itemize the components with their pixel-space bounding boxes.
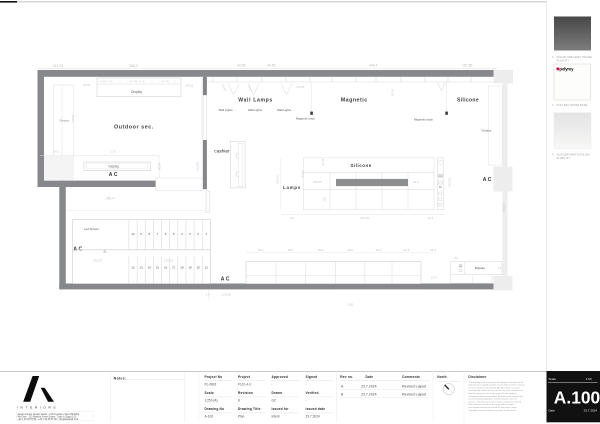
svg-text:This drawing is the property o: This drawing is the property of the desi… (468, 381, 524, 384)
svg-text:Approved: Approved (272, 375, 288, 379)
svg-text:Project: Project (238, 375, 251, 379)
svg-text:Magnetic track: Magnetic track (296, 117, 315, 121)
svg-text:17: 17 (172, 265, 176, 269)
svg-text:60: 60 (455, 256, 459, 260)
svg-text:F10 L4-3: F10 L4-3 (238, 382, 251, 386)
svg-text:84.7: 84.7 (54, 150, 60, 154)
svg-text:Wall Lights: Wall Lights (219, 108, 234, 112)
svg-text:other relevant consultant draw: other relevant consultant drawings and t… (468, 403, 514, 406)
svg-text:266.2: 266.2 (129, 64, 138, 68)
svg-text:300.55: 300.55 (502, 203, 506, 212)
svg-text:AC: AC (483, 177, 493, 183)
svg-text:checked and verified on site p: checked and verified on site prior to an… (468, 389, 523, 392)
svg-text:Display: Display (475, 266, 486, 270)
svg-text:Disclaimer: Disclaimer (468, 375, 487, 379)
svg-text:99.6: 99.6 (288, 248, 294, 252)
svg-text:Date: Date (549, 409, 556, 413)
svg-text:Plan: Plan (238, 414, 245, 418)
svg-text:18: 18 (180, 265, 184, 269)
svg-text:+49.55: +49.55 (296, 85, 305, 89)
svg-text:Notes:: Notes: (114, 376, 127, 380)
svg-text:99.6: 99.6 (347, 248, 353, 252)
svg-text:Wall Lights: Wall Lights (277, 108, 292, 112)
svg-text:14: 14 (148, 265, 152, 269)
svg-text:-: - (272, 382, 273, 386)
svg-text:practice. This drawing is to b: practice. This drawing is to be read in … (468, 400, 521, 403)
svg-text:Verified: Verified (306, 391, 319, 395)
svg-text:90: 90 (291, 216, 295, 220)
svg-text:21: 21 (205, 265, 209, 269)
svg-text:specification documents issued: specification documents issued for this … (468, 406, 517, 409)
svg-text:PL-0801: PL-0801 (205, 382, 217, 386)
svg-text:292: 292 (348, 303, 354, 307)
svg-text:GC: GC (272, 399, 277, 403)
svg-text:reproduced or copied in whole: reproduced or copied in whole or part wi… (468, 384, 525, 387)
svg-text:81: 81 (104, 250, 108, 254)
svg-text:4th Floor - 123 Mosseri Street: 4th Floor - 123 Mosseri Street Suites - … (18, 415, 77, 418)
svg-text:current building regulations a: current building regulations and all rel… (468, 398, 516, 401)
svg-text:99.9: 99.9 (258, 248, 264, 252)
svg-text:2.70: 2.70 (110, 150, 116, 154)
svg-text:Signed: Signed (306, 375, 318, 379)
svg-text:Wall Lights: Wall Lights (248, 108, 263, 112)
svg-text:39.4: 39.4 (413, 180, 419, 184)
svg-text:99.6: 99.6 (318, 248, 324, 252)
svg-text:1.6: 1.6 (206, 293, 210, 297)
svg-text:polyrey: polyrey (559, 67, 574, 72)
svg-text:Magnetic track: Magnetic track (414, 117, 433, 121)
svg-text:Silicone: Silicone (351, 163, 372, 168)
svg-text:Intent: Intent (272, 414, 280, 418)
svg-text:Display: Display (131, 90, 142, 94)
svg-text:Aswan Interior Design Studio -: Aswan Interior Design Studio - 123 Anywh… (18, 413, 81, 416)
svg-text:39.4: 39.4 (428, 216, 434, 220)
svg-text:Revision: Revision (238, 391, 253, 395)
svg-text:Silicone: Silicone (457, 97, 479, 103)
svg-text:A-100: A-100 (205, 414, 214, 418)
svg-text:66.01: 66.01 (186, 84, 194, 88)
svg-text:W (80) KIT: W (80) KIT (557, 156, 571, 160)
svg-text:Comments: Comments (402, 375, 420, 379)
svg-text:8: 8 (238, 399, 240, 403)
svg-text:-: - (306, 382, 307, 386)
svg-text:443.4: 443.4 (369, 63, 378, 67)
svg-text:99.6: 99.6 (404, 248, 410, 252)
svg-text:Magnetic: Magnetic (341, 97, 368, 103)
svg-text:COL#2: COL#2 (222, 293, 232, 297)
svg-text:23.7.2024: 23.7.2024 (361, 393, 377, 397)
svg-text:Scale: Scale (549, 377, 557, 381)
svg-text:16: 16 (164, 265, 168, 269)
svg-text:167.55: 167.55 (462, 63, 472, 67)
svg-text:433.00: 433.00 (313, 180, 322, 184)
svg-text:Issued date: Issued date (306, 407, 326, 411)
svg-text:-: - (306, 399, 307, 403)
svg-text:49.55: 49.55 (83, 83, 91, 87)
svg-text:Rev no.: Rev no. (340, 375, 353, 379)
svg-text:60 40 60 40 60: 60 40 60 40 60 (100, 81, 112, 83)
svg-text:44.55.: 44.55. (267, 63, 276, 67)
svg-text:99.6: 99.6 (376, 248, 382, 252)
svg-text:15: 15 (156, 265, 160, 269)
svg-text:Revised Layout: Revised Layout (402, 393, 426, 397)
svg-text:Issued for: Issued for (272, 407, 290, 411)
svg-text:122: 122 (322, 196, 326, 201)
svg-text:1:50: 1:50 (586, 377, 592, 381)
svg-text:90.84: 90.84 (158, 162, 162, 170)
svg-text:Do not scale from this drawing: Do not scale from this drawing. All dime… (468, 386, 520, 389)
svg-text:Display: Display (109, 165, 120, 169)
svg-text:13: 13 (139, 265, 143, 269)
svg-text:431.00: 431.00 (360, 216, 369, 220)
svg-text:23.7.2024: 23.7.2024 (584, 409, 598, 413)
svg-text:A.100: A.100 (554, 387, 600, 407)
svg-text:85.41: 85.41 (391, 89, 395, 96)
svg-text:60 40 60: 60 40 60 (162, 81, 169, 83)
svg-text:Lamps: Lamps (283, 185, 301, 190)
svg-text:Date: Date (366, 375, 374, 379)
svg-text:1:250 (A): 1:250 (A) (205, 399, 218, 403)
svg-text:10: 10 (131, 232, 135, 236)
svg-text:immediately before proceeding.: immediately before proceeding. All works… (468, 395, 523, 398)
svg-text:275.5: 275.5 (71, 114, 75, 122)
svg-text:AC: AC (221, 277, 231, 283)
svg-text:102.08: 102.08 (196, 162, 200, 171)
svg-text:AC: AC (109, 172, 119, 178)
svg-text:Any discrepancies are to be re: Any discrepancies are to be reported to … (468, 392, 517, 395)
svg-text:Scale: Scale (205, 391, 214, 395)
svg-text:Revised Layout: Revised Layout (402, 385, 426, 389)
svg-text:PLUS KIT: PLUS KIT (557, 59, 570, 63)
svg-text:4.1: 4.1 (498, 266, 502, 270)
svg-text:290.4: 290.4 (106, 196, 114, 200)
svg-text:Wall Lamps: Wall Lamps (238, 97, 273, 103)
svg-text:113.70: 113.70 (53, 64, 63, 68)
svg-text:Display: Display (482, 128, 492, 132)
svg-text:102.92: 102.92 (164, 258, 173, 262)
svg-text:99.4: 99.4 (430, 248, 436, 252)
svg-text:INTERIORS: INTERIORS (17, 405, 58, 409)
svg-text:60 40 60 40 60 40: 60 40 60 40 60 40 (130, 81, 145, 83)
svg-text:44.55: 44.55 (237, 63, 246, 67)
svg-text:44.32: 44.32 (321, 158, 325, 166)
svg-text:cashier: cashier (214, 149, 230, 155)
svg-text:Drawn: Drawn (272, 391, 283, 395)
svg-text:23.7.2024: 23.7.2024 (361, 385, 377, 389)
svg-text:Led Screen: Led Screen (84, 227, 99, 231)
svg-text:Display: Display (60, 119, 70, 123)
svg-text:142.35: 142.35 (93, 258, 102, 262)
svg-text:44.32: 44.32 (301, 170, 305, 178)
svg-text:19: 19 (188, 265, 192, 269)
svg-text:Outdoor sec.: Outdoor sec. (114, 125, 154, 131)
svg-text:Drawing Title: Drawing Title (238, 407, 261, 411)
svg-text:Project No: Project No (205, 375, 223, 379)
svg-text:106.55: 106.55 (448, 178, 452, 187)
svg-text:23.7.2024: 23.7.2024 (306, 414, 320, 418)
svg-text:205.55: 205.55 (276, 175, 280, 184)
svg-text:POLYREY WHITE BASE: POLYREY WHITE BASE (557, 103, 588, 107)
svg-text:12: 12 (131, 265, 135, 269)
svg-text:13.9: 13.9 (431, 276, 437, 280)
svg-text:+20 1 23 45 67 89 - +20 1 23 4: +20 1 23 45 67 89 - +20 1 23 45 67 89 - … (18, 419, 79, 421)
svg-text:Drawing No: Drawing No (205, 407, 225, 411)
svg-text:20: 20 (197, 265, 201, 269)
svg-text:North: North (437, 375, 447, 379)
svg-text:Copyright reserved. Report any: Copyright reserved. Report any errors or… (468, 409, 516, 412)
